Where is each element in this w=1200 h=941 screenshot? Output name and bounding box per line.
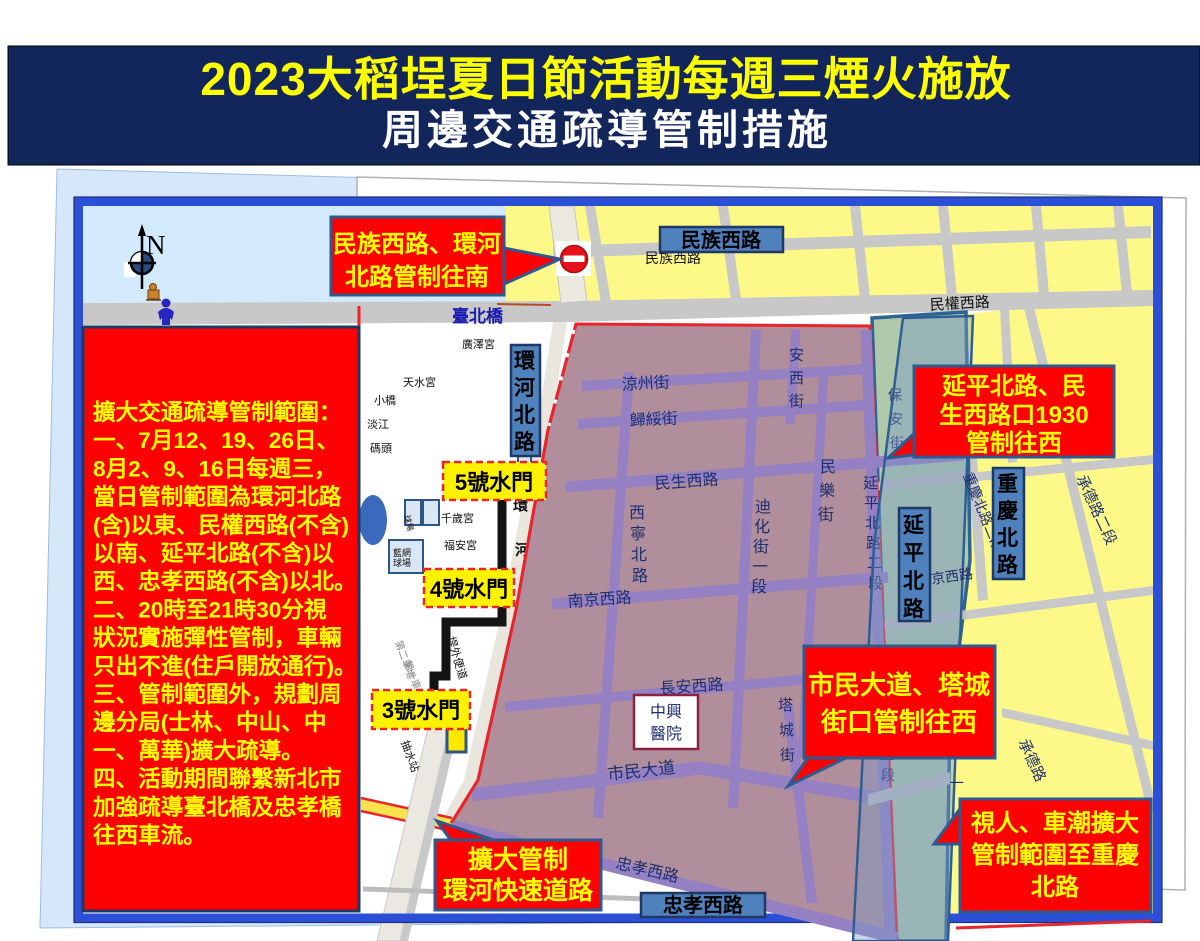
- svg-text:加強疏導臺北橋及忠孝橋: 加強疏導臺北橋及忠孝橋: [92, 794, 342, 820]
- svg-text:涼州街: 涼州街: [621, 374, 670, 394]
- svg-text:碼頭: 碼頭: [370, 442, 392, 455]
- svg-text:邊分局(士林、中山、中: 邊分局(士林、中山、中: [93, 709, 326, 735]
- svg-text:延平北路、民: 延平北路、民: [941, 372, 1086, 400]
- svg-text:N: N: [146, 230, 166, 260]
- svg-text:管制往西: 管制往西: [966, 429, 1062, 457]
- svg-text:北路: 北路: [1031, 873, 1080, 901]
- svg-text:忠孝西路: 忠孝西路: [663, 893, 744, 917]
- svg-text:狀況實施彈性管制，車輛: 狀況實施彈性管制，車輛: [93, 625, 342, 651]
- svg-text:四、活動期間聯繫新北市: 四、活動期間聯繫新北市: [93, 766, 342, 792]
- svg-text:千歲宮: 千歲宮: [441, 511, 474, 525]
- svg-text:歸綏街: 歸綏街: [629, 410, 678, 430]
- svg-text:街口管制往西: 街口管制往西: [820, 707, 977, 737]
- svg-text:民族西路: 民族西路: [645, 251, 701, 267]
- svg-text:醫院: 醫院: [650, 725, 682, 743]
- svg-text:塔城街: 塔城街: [778, 697, 795, 764]
- svg-text:民樂街: 民樂街: [818, 459, 836, 524]
- svg-text:周邊交通疏導管制措施: 周邊交通疏導管制措施: [382, 107, 832, 153]
- svg-text:藍網: 藍網: [393, 547, 411, 558]
- svg-text:天水宮: 天水宮: [403, 375, 436, 389]
- svg-text:(含)以東、民權西路(不含): (含)以東、民權西路(不含): [93, 512, 349, 538]
- svg-text:環河快速道路: 環河快速道路: [443, 876, 594, 905]
- svg-text:三、管制範圍外，規劃周: 三、管制範圍外，規劃周: [93, 681, 342, 707]
- svg-text:8月2、9、16日每週三，: 8月2、9、16日每週三，: [93, 455, 337, 481]
- svg-text:民族西路: 民族西路: [681, 228, 762, 252]
- svg-text:往西車流。: 往西車流。: [93, 822, 206, 848]
- svg-text:3號水門: 3號水門: [382, 698, 460, 723]
- svg-text:生西路口1930: 生西路口1930: [939, 401, 1088, 429]
- svg-text:北路管制往南: 北路管制往南: [345, 263, 489, 291]
- svg-text:當日管制範圍為環河北路: 當日管制範圍為環河北路: [93, 484, 342, 510]
- svg-text:一、萬華)擴大疏導。: 一、萬華)擴大疏導。: [93, 737, 304, 763]
- svg-text:民族西路、環河: 民族西路、環河: [333, 230, 501, 258]
- svg-text:淡江: 淡江: [367, 418, 389, 431]
- svg-text:2023大稻埕夏日節活動每週三煙火施放: 2023大稻埕夏日節活動每週三煙火施放: [200, 53, 1011, 105]
- svg-text:管制範圍至重慶: 管制範圍至重慶: [971, 841, 1139, 869]
- svg-text:只出不進(住戶開放通行)。: 只出不進(住戶開放通行)。: [93, 653, 357, 679]
- svg-text:5號水門: 5號水門: [455, 470, 533, 495]
- svg-text:4號水門: 4號水門: [430, 577, 508, 602]
- svg-text:球場: 球場: [393, 557, 411, 568]
- svg-text:小橋: 小橋: [374, 393, 396, 407]
- svg-text:二、20時至21時30分視: 二、20時至21時30分視: [93, 597, 327, 622]
- svg-text:擴大管制: 擴大管制: [468, 845, 568, 874]
- svg-text:福安宮: 福安宮: [444, 538, 477, 552]
- svg-text:一、7月12、19、26日、: 一、7月12、19、26日、: [93, 428, 339, 453]
- svg-text:擴大交通疏導管制範圍：: 擴大交通疏導管制範圍：: [93, 399, 342, 425]
- svg-text:中興: 中興: [650, 703, 682, 721]
- svg-text:視人、車潮擴大: 視人、車潮擴大: [970, 809, 1139, 837]
- svg-text:安西街: 安西街: [789, 347, 804, 410]
- svg-text:以南、延平北路(不含)以: 以南、延平北路(不含)以: [93, 540, 334, 566]
- svg-text:市民大道、塔城: 市民大道、塔城: [808, 670, 990, 700]
- svg-text:廣澤宮: 廣澤宮: [462, 337, 495, 351]
- svg-text:臺北橋: 臺北橋: [452, 306, 504, 326]
- svg-text:西、忠孝西路(不含)以北。: 西、忠孝西路(不含)以北。: [93, 568, 357, 594]
